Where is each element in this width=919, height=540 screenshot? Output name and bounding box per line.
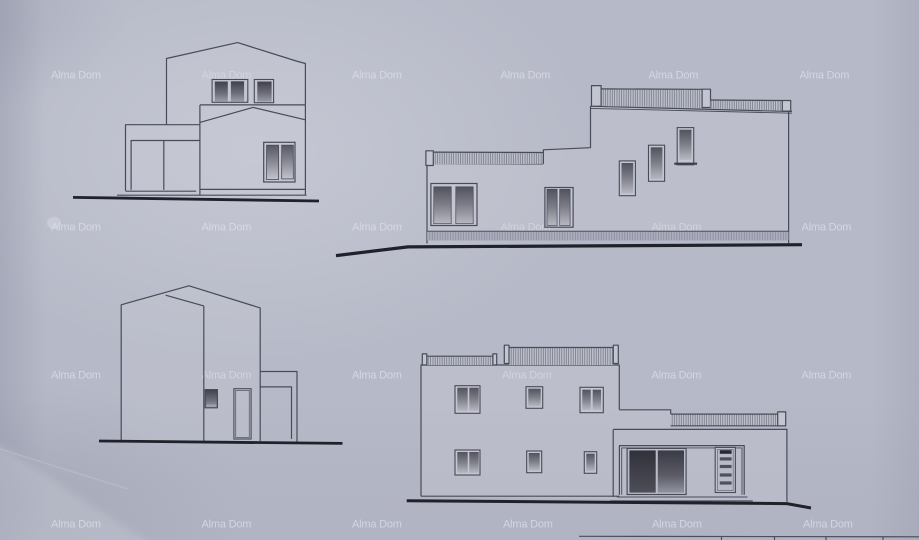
svg-text:Alma Dom: Alma Dom <box>51 69 101 81</box>
svg-text:Alma Dom: Alma Dom <box>51 518 101 530</box>
svg-text:Alma Dom: Alma Dom <box>352 69 402 81</box>
svg-text:Alma Dom: Alma Dom <box>802 370 852 382</box>
svg-text:Alma Dom: Alma Dom <box>652 370 702 382</box>
svg-text:Alma Dom: Alma Dom <box>649 69 699 81</box>
svg-text:Alma Dom: Alma Dom <box>503 518 553 530</box>
svg-text:Alma Dom: Alma Dom <box>352 222 402 234</box>
svg-text:Alma Dom: Alma Dom <box>352 370 402 382</box>
svg-text:Alma Dom: Alma Dom <box>501 69 551 81</box>
svg-text:Alma Dom: Alma Dom <box>800 69 850 81</box>
svg-text:Alma Dom: Alma Dom <box>652 518 702 530</box>
svg-text:Alma Dom: Alma Dom <box>51 370 101 382</box>
svg-text:Alma Dom: Alma Dom <box>352 518 402 530</box>
svg-text:Alma Dom: Alma Dom <box>803 518 853 530</box>
svg-text:Alma Dom: Alma Dom <box>51 222 101 234</box>
svg-text:Alma Dom: Alma Dom <box>202 518 252 530</box>
svg-text:Alma Dom: Alma Dom <box>202 222 252 234</box>
svg-text:Alma Dom: Alma Dom <box>802 222 852 234</box>
